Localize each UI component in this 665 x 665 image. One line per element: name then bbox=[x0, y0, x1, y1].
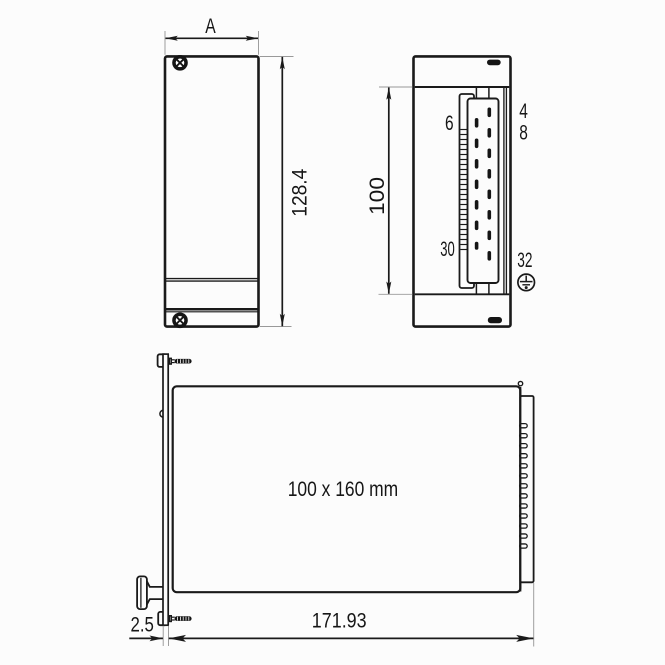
svg-text:32: 32 bbox=[517, 248, 532, 272]
svg-text:30: 30 bbox=[440, 237, 455, 261]
svg-text:2.5: 2.5 bbox=[131, 613, 154, 637]
svg-text:8: 8 bbox=[519, 120, 528, 144]
svg-text:100 x 160 mm: 100 x 160 mm bbox=[288, 477, 399, 501]
svg-text:A: A bbox=[205, 14, 216, 38]
svg-text:100: 100 bbox=[365, 177, 389, 215]
svg-text:6: 6 bbox=[445, 111, 454, 135]
svg-text:128.4: 128.4 bbox=[287, 169, 311, 217]
svg-text:171.93: 171.93 bbox=[312, 608, 367, 632]
